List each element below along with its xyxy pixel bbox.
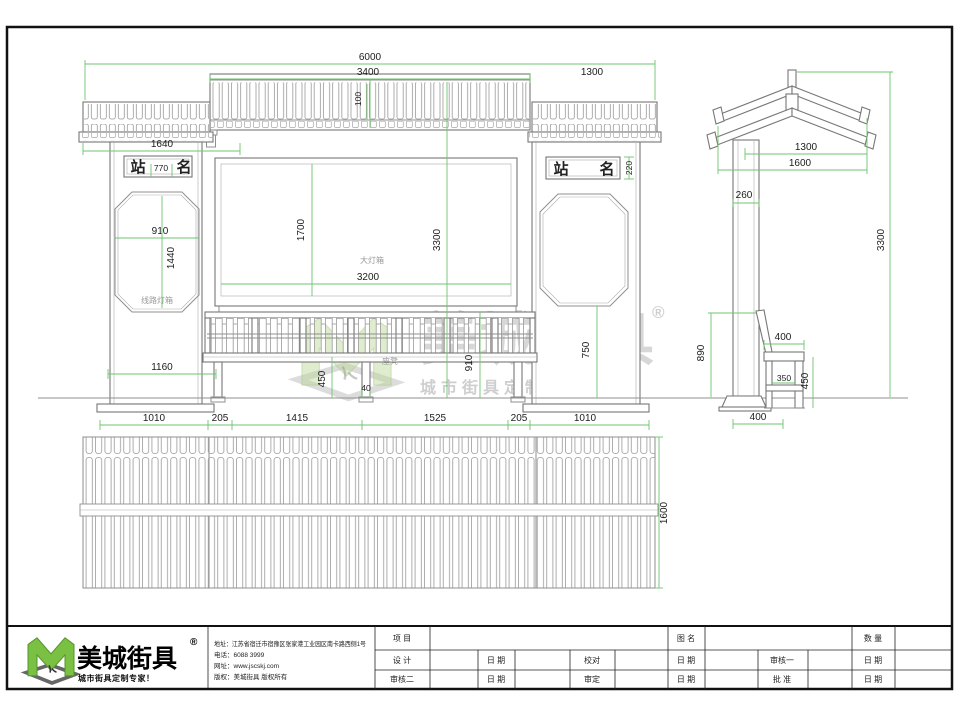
company-logo: 美城街具 ® 城市街具定制专家！ — [26, 637, 198, 683]
field-design: 设 计 — [393, 655, 411, 665]
front-roof-left — [79, 102, 213, 142]
dim-side-back-height: 890 — [696, 344, 707, 361]
bench-leg — [214, 362, 222, 397]
dim-panel-bottom: 750 — [581, 341, 592, 358]
dim-right-roof: 1300 — [581, 67, 604, 78]
side-column — [719, 140, 771, 411]
company-contact: 地址：江苏省宿迁市宿豫区张家港工业园区南卡路西侧1号 电话：6088 3999 … — [214, 639, 366, 681]
logo-registered-icon: ® — [190, 637, 198, 648]
station-sign-left-char1: 站 — [130, 158, 145, 176]
title-block: 美城街具 ® 城市街具定制专家！ 地址：江苏省宿迁市宿豫区张家港工业园区南卡路西… — [7, 626, 952, 689]
dim-seat-inner: 350 — [777, 373, 791, 383]
logo-tagline: 城市街具定制专家！ — [78, 673, 155, 683]
dim-side-total-height: 3300 — [876, 228, 887, 251]
dim-side-roof-upper: 1300 — [795, 142, 818, 153]
front-right-pillar: 站 名 — [532, 142, 640, 404]
field-drawing-name: 图 名 — [677, 633, 695, 643]
dim-box-width: 3200 — [357, 272, 380, 283]
dim-total-width: 6000 — [359, 52, 382, 63]
dim-base6: 1010 — [574, 413, 597, 424]
dim-panel-height: 1440 — [166, 246, 177, 269]
field-reviewer2: 审核二 — [390, 674, 414, 684]
cad-drawing: 美城街具 ® 城市街具定制专家！ — [0, 0, 960, 704]
field-project: 项 目 — [393, 634, 411, 643]
right-base-plate — [523, 404, 649, 412]
side-plinth — [722, 396, 766, 407]
left-base-plate — [97, 404, 214, 412]
dim-leg-width: 40 — [361, 383, 371, 393]
dim-base5: 205 — [511, 413, 528, 424]
dim-side-base: 400 — [750, 412, 767, 423]
dim-center-roof: 3400 — [357, 67, 380, 78]
dim-panel-width: 910 — [152, 226, 169, 237]
dim-bench-height: 910 — [464, 354, 475, 371]
dim-base3: 1415 — [286, 413, 309, 424]
contact-copyright: 版权：美城街具 版权所有 — [214, 672, 288, 681]
dim-sign-left: 770 — [154, 163, 168, 173]
field-proofread: 校对 — [584, 655, 600, 665]
dim-box-height: 1700 — [296, 218, 307, 241]
dim-side-seat-height: 450 — [800, 372, 811, 389]
dim-pillar-width: 1160 — [151, 362, 173, 373]
side-roof — [707, 70, 876, 149]
bench-label: 座凳 — [382, 356, 398, 366]
field-date-1: 日 期 — [487, 656, 505, 665]
side-elevation: 1300 1600 260 3300 890 400 350 450 — [696, 70, 893, 429]
logo-brand-text: 美城街具 — [77, 644, 177, 673]
dim-base1: 1010 — [143, 413, 166, 424]
roof-plan: 1600 — [80, 437, 670, 588]
drawing-sheet: 美城街具 ® 城市街具定制专家！ — [0, 0, 960, 704]
dim-gap: 100 — [353, 92, 363, 106]
field-date-4: 日 期 — [487, 675, 505, 684]
station-sign-right-char1: 站 — [553, 160, 568, 178]
route-lightbox-label: 线路灯箱 — [141, 295, 173, 305]
dim-seat-height: 450 — [317, 370, 328, 387]
dim-base4: 1525 — [424, 413, 447, 424]
dim-side-roof-total: 1600 — [789, 158, 812, 169]
field-date-6: 日 期 — [864, 675, 882, 684]
m-logo-icon — [26, 638, 76, 683]
dim-side-column: 260 — [736, 190, 753, 201]
contact-website: 网址：www.jscskj.com — [214, 661, 279, 670]
dim-sign-right: 220 — [624, 161, 634, 175]
field-date-3: 日 期 — [864, 656, 882, 665]
title-table: 项 目 图 名 数 量 设 计 日 期 校对 日 期 审核一 日 期 审核二 日… — [375, 626, 952, 689]
lightbox-label: 大灯箱 — [360, 255, 384, 265]
contact-phone: 电话：6088 3999 — [214, 650, 265, 659]
dim-base2: 205 — [212, 413, 229, 424]
field-date-5: 日 期 — [677, 675, 695, 684]
front-roof-right — [528, 102, 661, 142]
field-verify: 审定 — [584, 674, 600, 684]
watermark-registered-icon: ® — [652, 303, 665, 322]
station-sign-right-char2: 名 — [599, 160, 614, 178]
dim-left-roof: 1640 — [151, 139, 174, 150]
field-reviewer1: 审核一 — [770, 655, 794, 665]
front-roof-center — [205, 74, 530, 147]
station-sign-left-char2: 名 — [176, 158, 191, 176]
side-bench — [756, 310, 805, 408]
field-date-2: 日 期 — [677, 656, 695, 665]
dim-plan-depth: 1600 — [659, 501, 670, 524]
bench-leg — [514, 362, 522, 397]
dim-seat-depth: 400 — [775, 332, 792, 343]
field-quantity: 数 量 — [864, 633, 882, 643]
contact-address: 地址：江苏省宿迁市宿豫区张家港工业园区南卡路西侧1号 — [214, 639, 366, 648]
field-approve: 批 准 — [773, 674, 791, 684]
dim-total-height: 3300 — [432, 228, 443, 251]
